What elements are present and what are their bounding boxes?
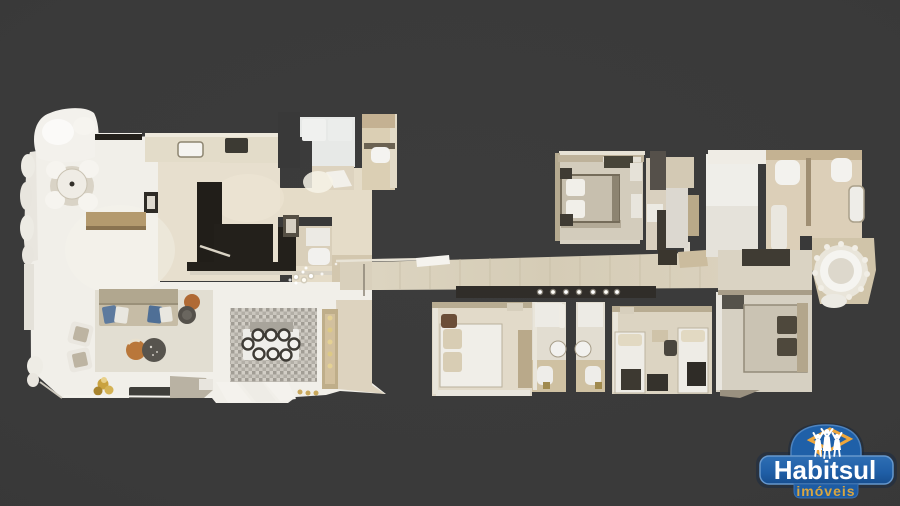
svg-text:Habitsul: Habitsul	[774, 455, 877, 485]
svg-text:imóveis: imóveis	[796, 483, 855, 499]
